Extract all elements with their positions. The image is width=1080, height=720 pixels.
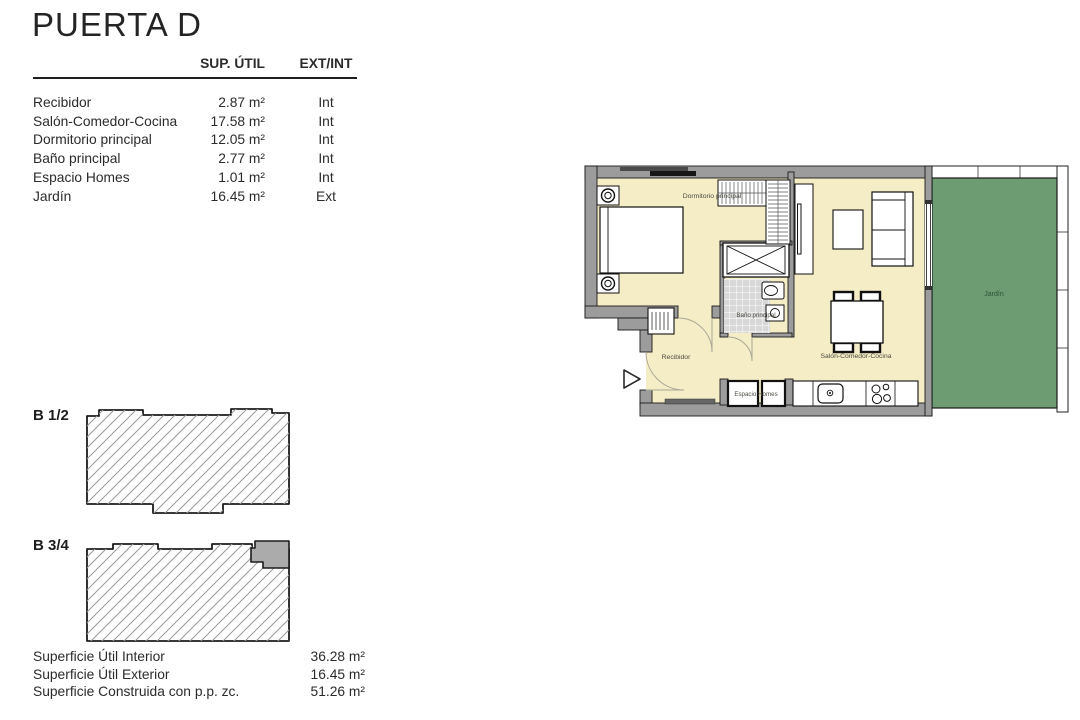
room-ext-int: Int (265, 94, 357, 113)
summary-totals: Superficie Útil Interior36.28 m²Superfic… (33, 648, 365, 701)
room-ext-int: Int (265, 150, 357, 169)
floorplan-drawing: Dormitorio principal Baño principal Reci… (580, 156, 1080, 418)
summary-label: Superficie Útil Interior (33, 648, 270, 666)
page-title: PUERTA D (32, 6, 202, 44)
block-b12-label: B 1/2 (33, 407, 69, 424)
header-type-column: EXT/INT (265, 56, 357, 71)
summary-row: Superficie Construida con p.p. zc.51.26 … (33, 683, 365, 701)
room-ext-int: Int (265, 113, 357, 132)
room-name: Espacio Homes (33, 169, 188, 188)
summary-row: Superficie Útil Interior36.28 m² (33, 648, 365, 666)
header-area-column: SUP. ÚTIL (188, 56, 265, 71)
table-row: Dormitorio principal12.05 m²Int (33, 131, 357, 150)
table-row: Salón-Comedor-Cocina17.58 m²Int (33, 113, 357, 132)
bathroom-fixtures (723, 243, 789, 333)
summary-label: Superficie Construida con p.p. zc. (33, 683, 270, 701)
block-b12-diagram (85, 406, 291, 516)
toilet-symbol (762, 282, 784, 299)
shower-symbol (723, 243, 789, 277)
room-name: Baño principal (33, 150, 188, 169)
tv-unit-symbol (795, 184, 813, 274)
room-label-storage: Espacio Homes (734, 391, 777, 398)
room-label-bedroom: Dormitorio principal (683, 193, 742, 200)
block-b34-diagram (85, 537, 291, 645)
header-room-column (33, 56, 188, 71)
room-name: Jardín (33, 188, 188, 207)
room-area: 2.77 m² (188, 150, 265, 169)
room-label-garden: Jardín (984, 291, 1004, 298)
room-name: Dormitorio principal (33, 131, 188, 150)
room-name: Salón-Comedor-Cocina (33, 113, 188, 132)
garden-area (932, 166, 1068, 412)
room-area: 12.05 m² (188, 131, 265, 150)
threshold-symbol (665, 399, 715, 404)
summary-value: 16.45 m² (270, 666, 365, 684)
room-ext-int: Int (265, 169, 357, 188)
room-area: 1.01 m² (188, 169, 265, 188)
room-label-living: Salón-Comedor-Cocina (820, 353, 891, 360)
kitchen-counter-symbol (793, 381, 918, 406)
room-name: Recibidor (33, 94, 188, 113)
room-ext-int: Int (265, 131, 357, 150)
sofa-symbol (872, 192, 913, 266)
room-area: 17.58 m² (188, 113, 265, 132)
kitchen-sink-symbol (818, 384, 843, 403)
garden-glass-door-symbol (925, 200, 932, 290)
entrance-arrow-icon (624, 370, 640, 388)
summary-value: 51.26 m² (270, 683, 365, 701)
summary-value: 36.28 m² (270, 648, 365, 666)
room-label-bathroom: Baño principal (736, 312, 775, 319)
block-b34-label: B 3/4 (33, 537, 69, 554)
summary-label: Superficie Útil Exterior (33, 666, 270, 684)
areas-table-header: SUP. ÚTIL EXT/INT (33, 56, 357, 79)
table-row: Baño principal2.77 m²Int (33, 150, 357, 169)
room-area: 16.45 m² (188, 188, 265, 207)
room-ext-int: Ext (265, 188, 357, 207)
room-area: 2.87 m² (188, 94, 265, 113)
summary-row: Superficie Útil Exterior16.45 m² (33, 666, 365, 684)
table-row: Recibidor2.87 m²Int (33, 94, 357, 113)
areas-table: SUP. ÚTIL EXT/INT Recibidor2.87 m²IntSal… (33, 56, 357, 206)
dining-table-symbol (831, 292, 883, 352)
table-row: Jardín16.45 m²Ext (33, 188, 357, 207)
radiator-symbol (648, 308, 674, 334)
areas-table-rows: Recibidor2.87 m²IntSalón-Comedor-Cocina1… (33, 94, 357, 206)
room-label-hall: Recibidor (662, 354, 691, 361)
table-row: Espacio Homes1.01 m²Int (33, 169, 357, 188)
coffee-table-symbol (833, 210, 863, 249)
